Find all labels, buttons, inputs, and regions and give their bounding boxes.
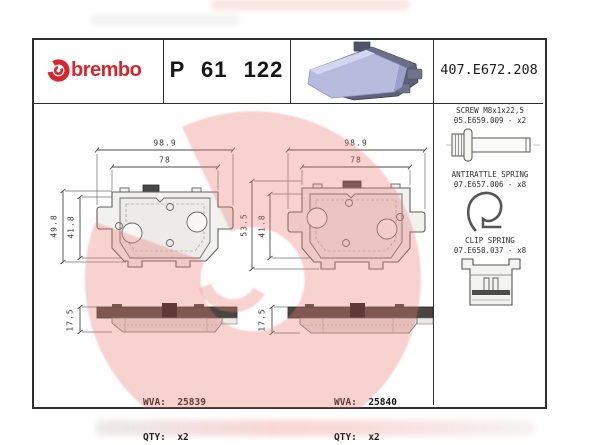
dim-thickness-right: 17.5 xyxy=(258,308,267,331)
clip-spring-name: CLIP SPRING xyxy=(433,236,547,246)
header-divider-2 xyxy=(290,38,291,103)
wva-right: WVA: 25840 xyxy=(334,397,397,409)
header-bottom-rule xyxy=(32,103,543,104)
dim-height-inner-right: 41.8 xyxy=(258,214,267,237)
scan-smear-top xyxy=(210,0,410,10)
qty-left: QTY: x2 xyxy=(143,432,206,444)
datasheet-page: brembo P 61 122 407.E672.208 SCREW M8x1x… xyxy=(0,0,600,445)
screw-diagram-icon xyxy=(446,124,540,166)
dim-height-total-left: 49.8 xyxy=(50,214,59,237)
right-pad-side-view-drawing xyxy=(245,296,445,341)
catalog-code: 407.E672.208 xyxy=(433,62,545,78)
dim-thickness-left: 17.5 xyxy=(66,308,75,331)
qty-right: QTY: x2 xyxy=(334,432,397,444)
left-pad-front-view-drawing xyxy=(40,130,255,290)
wva-qty-left: WVA: 25839 QTY: x2 xyxy=(143,374,206,445)
right-pad-front-view-drawing xyxy=(235,122,450,290)
antirattle-spring-icon xyxy=(462,188,516,236)
dim-height-total-right: 53.5 xyxy=(240,213,249,236)
screw-name: SCREW M8x1x22,5 xyxy=(433,106,547,116)
part-number: P 61 122 xyxy=(163,57,290,83)
scan-smear-top-left xyxy=(90,14,240,26)
brembo-glyph-icon xyxy=(45,57,72,84)
left-pad-side-view-drawing xyxy=(55,296,245,341)
dim-width-total-right: 98.9 xyxy=(344,139,367,148)
antirattle-spring-name: ANTIRATTLE SPRING xyxy=(433,170,547,180)
dim-width-inner-left: 78 xyxy=(159,156,171,165)
wva-qty-right: WVA: 25840 QTY: x2 xyxy=(334,374,397,445)
brake-pad-3d-image xyxy=(294,40,430,102)
wva-left: WVA: 25839 xyxy=(143,397,206,409)
dim-width-total-left: 98.9 xyxy=(153,139,176,148)
dim-width-inner-right: 78 xyxy=(350,156,362,165)
brand-wordmark: brembo xyxy=(71,58,141,82)
clip-spring-icon xyxy=(459,255,523,311)
dim-height-inner-left: 41.8 xyxy=(67,215,76,238)
